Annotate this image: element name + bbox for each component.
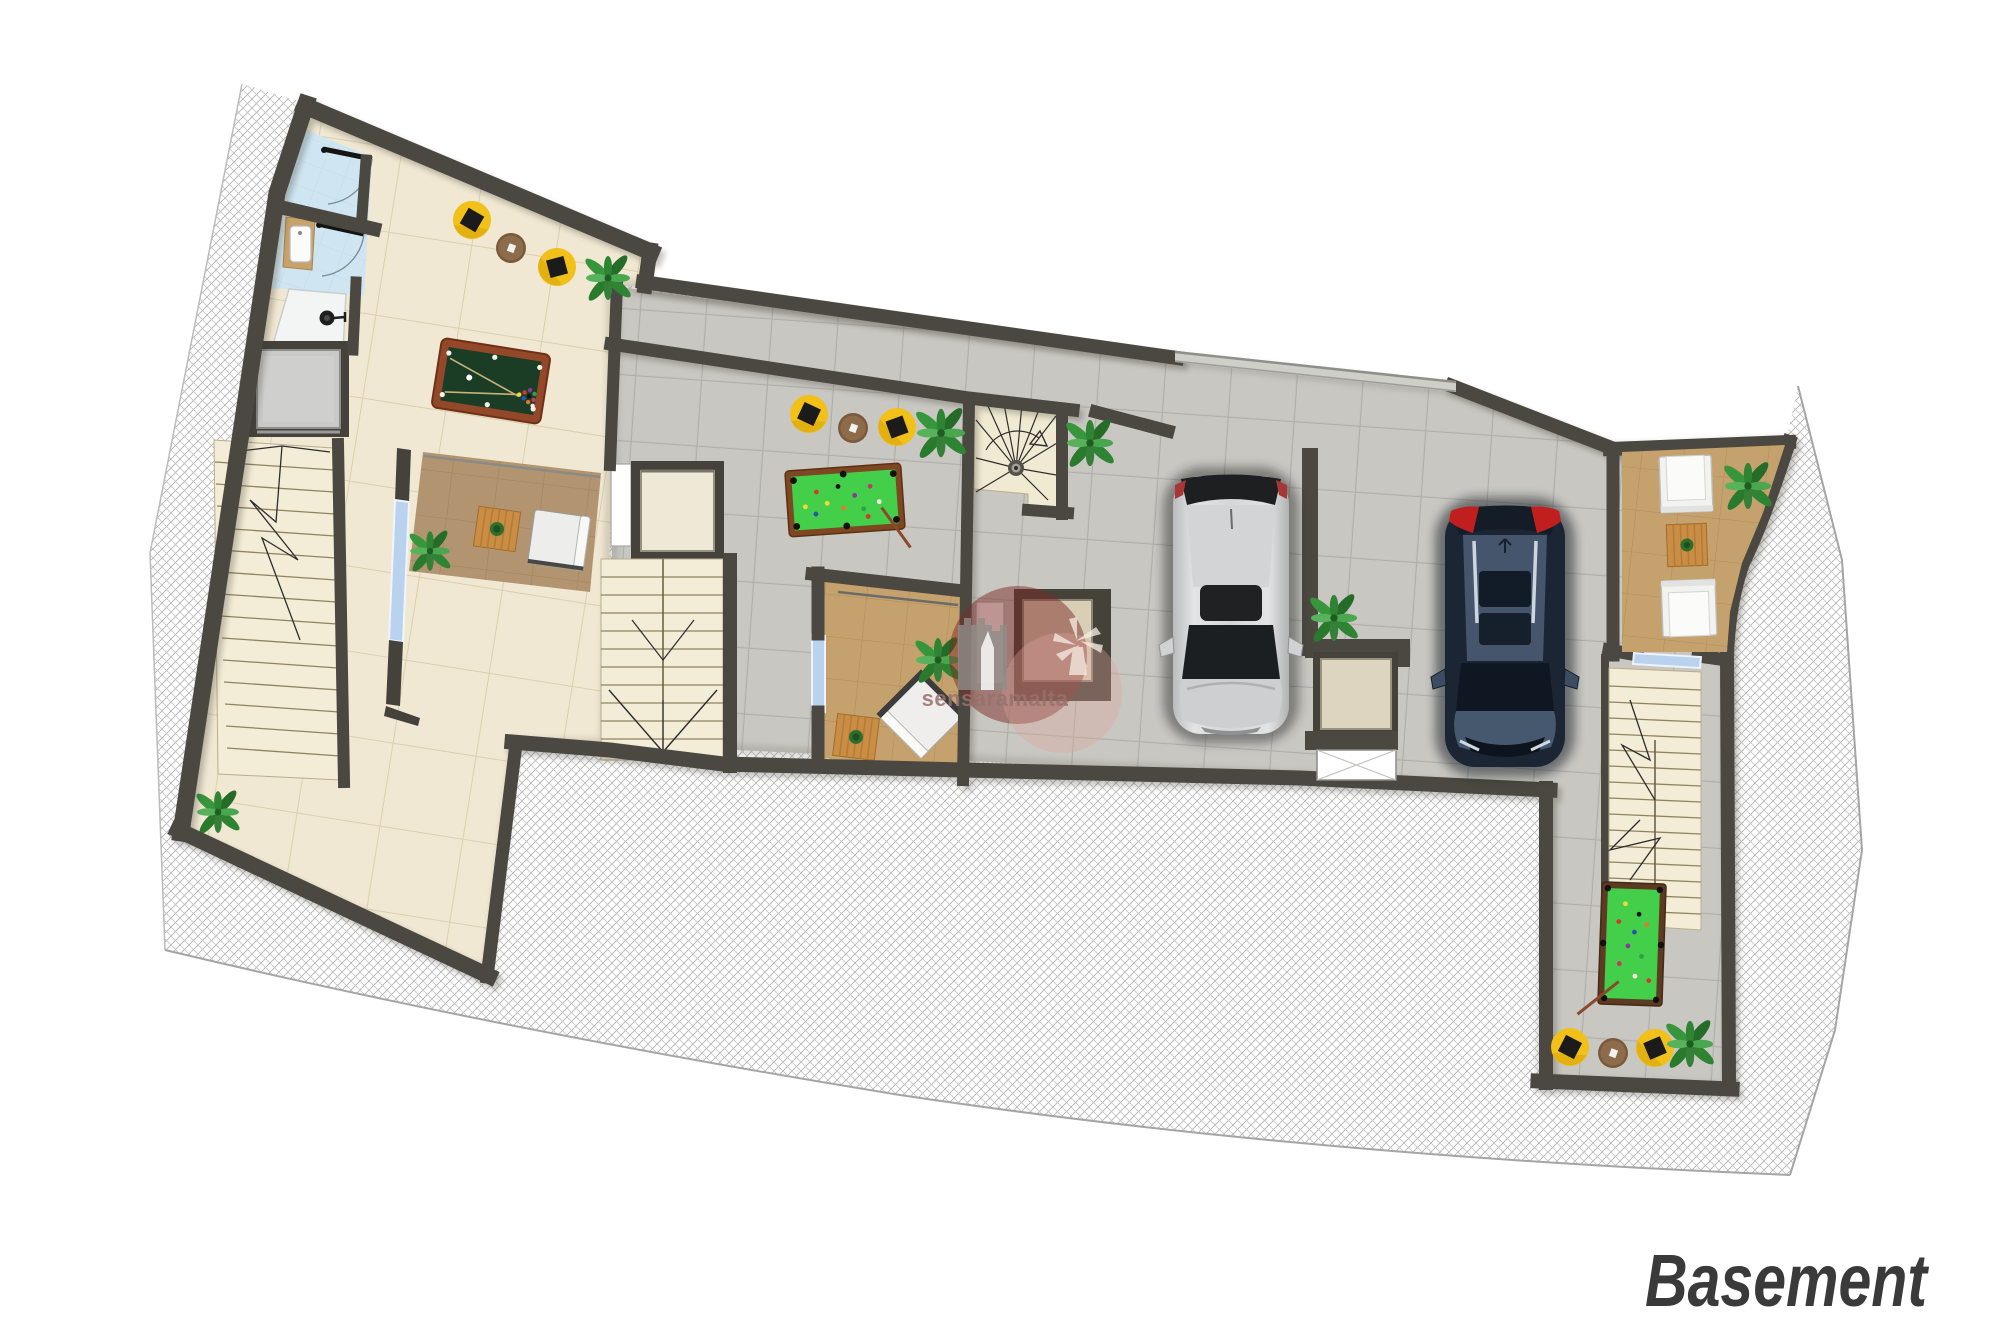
svg-text:Basement: Basement — [1645, 1239, 1930, 1322]
svg-text:sensaramalta: sensaramalta — [922, 686, 1069, 711]
